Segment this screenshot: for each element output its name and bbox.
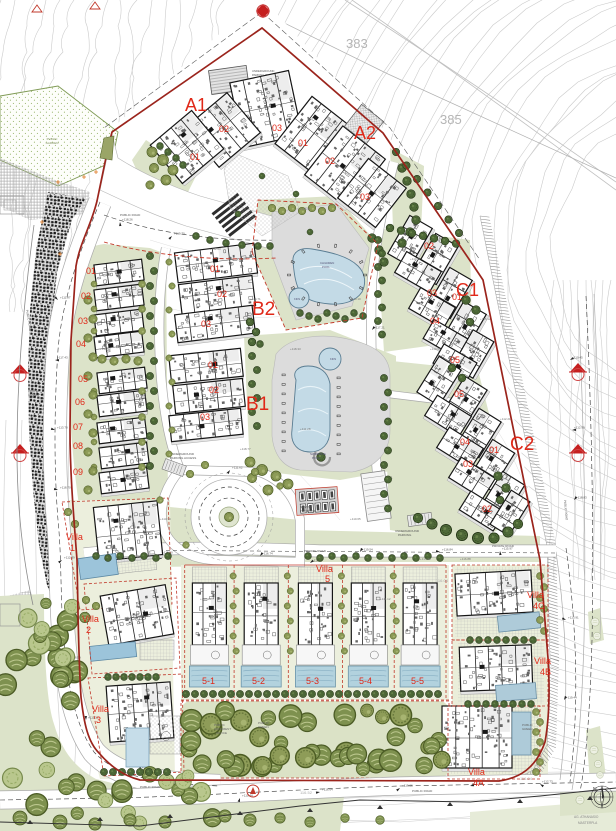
svg-text:+119.44: +119.44: [566, 696, 577, 700]
svg-text:116.04: 116.04: [436, 578, 449, 583]
svg-text:POOL: POOL: [322, 265, 330, 269]
svg-text:Villa: Villa: [468, 767, 485, 777]
svg-text:3: 3: [96, 715, 101, 725]
svg-text:Villa: Villa: [92, 704, 109, 714]
svg-text:03: 03: [200, 412, 210, 422]
svg-text:+111.62: +111.62: [232, 466, 243, 470]
svg-text:+119.70: +119.70: [174, 232, 185, 236]
svg-text:+112.63: +112.63: [210, 247, 221, 251]
svg-text:+116.74: +116.74: [262, 552, 273, 556]
svg-text:+116.84: +116.84: [442, 548, 453, 552]
svg-text:B1: B1: [246, 394, 269, 415]
svg-text:+113.91: +113.91: [568, 616, 579, 620]
svg-text:+112.21: +112.21: [500, 417, 511, 421]
svg-text:+113.39: +113.39: [160, 517, 171, 521]
svg-text:+113.70: +113.70: [57, 426, 68, 430]
svg-text:PARKING: PARKING: [398, 533, 412, 537]
svg-text:Villa: Villa: [66, 532, 83, 542]
svg-text:116.52: 116.52: [300, 790, 313, 795]
svg-text:02: 02: [217, 289, 227, 299]
svg-text:06: 06: [75, 397, 85, 407]
svg-text:+118.77: +118.77: [240, 447, 251, 451]
svg-text:GREEN: GREEN: [28, 393, 39, 397]
svg-text:PRIVATE ROAD: PRIVATE ROAD: [492, 544, 515, 548]
svg-text:+112.39: +112.39: [64, 556, 75, 560]
svg-text:03: 03: [78, 316, 88, 326]
svg-text:+116.91: +116.91: [300, 207, 311, 211]
svg-text:GREEN: GREEN: [522, 727, 533, 731]
svg-text:04: 04: [76, 339, 86, 349]
svg-text:+119.54: +119.54: [362, 548, 373, 552]
svg-text:MASTERPLA: MASTERPLA: [578, 821, 598, 825]
svg-text:5-4: 5-4: [359, 676, 372, 686]
svg-text:01: 01: [489, 445, 499, 455]
svg-text:A2: A2: [354, 123, 376, 143]
svg-text:+113.70: +113.70: [200, 337, 211, 341]
svg-text:02: 02: [482, 504, 492, 514]
svg-text:+118.70: +118.70: [60, 486, 71, 490]
svg-text:A1: A1: [185, 95, 207, 115]
svg-text:Villa: Villa: [82, 614, 99, 624]
svg-text:5-1: 5-1: [202, 676, 215, 686]
svg-text:KIDS: KIDS: [294, 297, 300, 301]
svg-text:+116.64: +116.64: [322, 788, 333, 792]
svg-text:+119.66: +119.66: [402, 784, 413, 788]
svg-text:+119.64: +119.64: [430, 347, 441, 351]
svg-text:05: 05: [78, 374, 88, 384]
svg-text:+112.73: +112.73: [542, 780, 553, 784]
svg-text:383: 383: [346, 36, 368, 51]
svg-text:+118.83: +118.83: [576, 496, 587, 500]
svg-text:+116.88: +116.88: [460, 557, 471, 561]
svg-text:+117.14: +117.14: [200, 597, 211, 601]
svg-text:09: 09: [73, 467, 83, 477]
svg-text:+115.12: +115.12: [480, 317, 491, 321]
svg-text:+110.57: +110.57: [410, 257, 421, 261]
svg-text:02: 02: [219, 124, 229, 134]
svg-text:02: 02: [325, 156, 335, 166]
svg-text:04: 04: [430, 316, 440, 326]
svg-text:01: 01: [210, 264, 220, 274]
svg-text:+111.12: +111.12: [380, 597, 391, 601]
svg-text:POOL: POOL: [312, 456, 321, 460]
svg-text:+111.93: +111.93: [100, 347, 111, 351]
svg-text:B2: B2: [252, 299, 275, 320]
svg-text:02: 02: [424, 241, 434, 251]
svg-text:PRIVATE ROAD: PRIVATE ROAD: [304, 549, 327, 553]
svg-text:+113.10: +113.10: [350, 297, 361, 301]
svg-text:4C: 4C: [533, 601, 545, 611]
svg-text:01: 01: [190, 152, 200, 162]
svg-text:5: 5: [325, 574, 330, 584]
svg-text:07: 07: [73, 422, 83, 432]
svg-text:08: 08: [73, 441, 83, 451]
svg-text:03: 03: [201, 319, 211, 329]
svg-text:+115.79: +115.79: [420, 557, 431, 561]
svg-text:03: 03: [360, 192, 370, 202]
svg-text:+118.26: +118.26: [122, 218, 133, 222]
svg-text:03: 03: [427, 288, 437, 298]
svg-text:+117.21: +117.21: [374, 326, 385, 330]
svg-text:AG. ATHANASIO: AG. ATHANASIO: [574, 815, 599, 819]
svg-text:OFFICE: OFFICE: [216, 731, 227, 735]
svg-text:02: 02: [81, 291, 91, 301]
svg-text:385: 385: [440, 112, 462, 127]
svg-text:KIDS: KIDS: [330, 357, 336, 361]
svg-text:03: 03: [272, 123, 282, 133]
svg-text:+111.28: +111.28: [300, 427, 311, 431]
svg-text:Villa: Villa: [534, 656, 551, 666]
svg-text:+110.45: +110.45: [572, 356, 583, 360]
svg-text:5-5: 5-5: [411, 676, 424, 686]
svg-text:03: 03: [463, 459, 473, 469]
svg-text:+118.33: +118.33: [290, 347, 301, 351]
svg-text:4B: 4B: [540, 667, 551, 677]
svg-text:PUBLIC ROAD: PUBLIC ROAD: [140, 785, 161, 789]
svg-text:PUBLIC ROAD: PUBLIC ROAD: [412, 789, 433, 793]
svg-text:+110.65: +110.65: [350, 517, 361, 521]
svg-text:PUBLIC ROAD: PUBLIC ROAD: [120, 213, 141, 217]
svg-text:01: 01: [452, 292, 462, 302]
svg-text:+111.87: +111.87: [60, 296, 71, 300]
svg-text:5-3: 5-3: [306, 676, 319, 686]
svg-text:2: 2: [86, 625, 91, 635]
svg-text:GREEN: GREEN: [258, 725, 269, 729]
svg-text:01: 01: [208, 360, 218, 370]
svg-text:Villa: Villa: [527, 590, 544, 600]
svg-text:01: 01: [298, 138, 308, 148]
svg-text:05: 05: [450, 355, 460, 365]
svg-text:PARKING ACCESS: PARKING ACCESS: [170, 456, 196, 460]
svg-text:4A: 4A: [473, 778, 484, 788]
svg-text:04: 04: [460, 437, 470, 447]
svg-text:5-2: 5-2: [252, 676, 265, 686]
svg-text:GARDEN: GARDEN: [46, 141, 59, 145]
svg-text:+117.98: +117.98: [120, 417, 131, 421]
svg-text:PLATFORM: PLATFORM: [300, 509, 316, 513]
svg-text:01: 01: [86, 266, 96, 276]
svg-text:Villa: Villa: [316, 564, 333, 574]
svg-text:02: 02: [209, 385, 219, 395]
svg-text:C2: C2: [510, 434, 534, 455]
svg-text:+112.99: +112.99: [574, 426, 585, 430]
svg-text:+117.43: +117.43: [57, 356, 68, 360]
svg-text:1: 1: [70, 543, 75, 553]
svg-text:05: 05: [454, 389, 464, 399]
svg-text:116.04: 116.04: [520, 776, 533, 781]
